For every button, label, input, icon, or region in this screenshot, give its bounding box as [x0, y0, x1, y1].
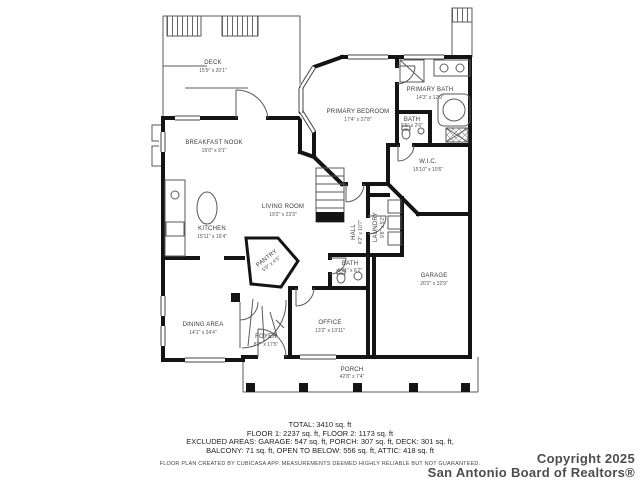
sink-icon [456, 64, 464, 72]
washer-icon [388, 200, 401, 213]
room-label-deck: DECK 15'9" x 20'1" [199, 60, 227, 74]
room-label-porch: PORCH 42'8" x 7'4" [340, 367, 365, 380]
svg-text:BATH: BATH [342, 261, 358, 267]
room-label-dining-area: DINING AREA 14'1" x 24'4" [183, 322, 224, 336]
room-label-pantry: PANTRY 5'0" x 4'5" [255, 249, 283, 275]
room-label-breakfast-nook: BREAKFAST NOOK 15'0" x 9'1" [185, 140, 242, 154]
svg-text:14'1" x 24'4": 14'1" x 24'4" [189, 330, 217, 336]
svg-text:14'3" x 12'9": 14'3" x 12'9" [416, 95, 444, 101]
copyright-year: Copyright 2025 [428, 452, 635, 466]
svg-text:DECK: DECK [204, 60, 221, 66]
room-label-foyer: FOYER 8'7" x 17'5" [254, 334, 279, 348]
svg-text:PORCH: PORCH [341, 367, 364, 373]
room-label-living-room: LIVING ROOM 19'2" x 23'3" [262, 204, 304, 218]
svg-text:LAUNDRY: LAUNDRY [373, 212, 379, 242]
svg-text:19'2" x 23'3": 19'2" x 23'3" [269, 212, 297, 218]
room-label-laundry: LAUNDRY 9'8" x 5'2" [373, 212, 386, 242]
room-label-bath-primary-wc: BATH 5'9" x 2'6" [401, 117, 423, 129]
svg-text:PRIMARY BEDROOM: PRIMARY BEDROOM [327, 109, 390, 115]
svg-text:4'2" x 10'7": 4'2" x 10'7" [358, 219, 364, 244]
svg-text:13'2" x 13'11": 13'2" x 13'11" [315, 328, 345, 334]
svg-text:17'4" x 27'8": 17'4" x 27'8" [344, 117, 372, 123]
deck-outline [163, 16, 300, 118]
room-label-bath-first-floor: BATH 5'11" x 6'2" [338, 261, 362, 274]
kitchen-island [197, 192, 217, 224]
sink-icon [440, 64, 448, 72]
room-label-primary-bedroom: PRIMARY BEDROOM 17'4" x 27'8" [327, 109, 390, 123]
porch-posts [246, 383, 470, 392]
svg-text:GARAGE: GARAGE [421, 273, 448, 279]
kitchen-fixtures [165, 180, 217, 256]
svg-text:DINING AREA: DINING AREA [183, 322, 224, 328]
svg-text:5'11" x 6'2": 5'11" x 6'2" [338, 268, 362, 274]
room-label-kitchen: KITCHEN 15'11" x 16'4" [197, 226, 227, 240]
copyright-owner: San Antonio Board of Realtors® [428, 466, 635, 480]
room-label-wic: W.I.C. 15'10" x 10'6" [413, 159, 443, 173]
copyright-watermark: Copyright 2025 San Antonio Board of Real… [428, 452, 635, 480]
svg-text:OFFICE: OFFICE [318, 320, 341, 326]
svg-text:15'9" x 20'1": 15'9" x 20'1" [199, 68, 227, 74]
svg-text:KITCHEN: KITCHEN [198, 226, 226, 232]
laundry-appliances [388, 200, 401, 245]
floor-plan-drawing: DECK 15'9" x 20'1" BREAKFAST NOOK 15'0" … [0, 0, 640, 480]
room-label-hall: HALL 4'2" x 10'7" [351, 219, 364, 244]
svg-text:LIVING ROOM: LIVING ROOM [262, 204, 304, 210]
svg-text:FOYER: FOYER [255, 334, 277, 340]
svg-text:15'11" x 16'4": 15'11" x 16'4" [197, 234, 227, 240]
straight-staircase [316, 168, 344, 222]
svg-text:15'10" x 10'6": 15'10" x 10'6" [413, 167, 443, 173]
svg-text:9'8" x 5'2": 9'8" x 5'2" [380, 216, 386, 238]
svg-text:HALL: HALL [351, 224, 357, 240]
dryer-icon [388, 216, 401, 229]
svg-text:BREAKFAST NOOK: BREAKFAST NOOK [185, 140, 242, 146]
room-label-office: OFFICE 13'2" x 13'11" [315, 320, 345, 334]
vanity-counter [434, 60, 470, 76]
floor-plan-page: DECK 15'9" x 20'1" BREAKFAST NOOK 15'0" … [0, 0, 640, 480]
stove-icon [166, 222, 184, 236]
svg-text:PRIMARY BATH: PRIMARY BATH [407, 87, 454, 93]
room-label-garage: GARAGE 20'2" x 32'9" [420, 273, 448, 287]
svg-text:15'0" x 9'1": 15'0" x 9'1" [202, 148, 227, 154]
svg-text:20'2" x 32'9": 20'2" x 32'9" [420, 281, 448, 287]
svg-text:5'9" x 2'6": 5'9" x 2'6" [401, 123, 423, 129]
upper-balcony-outline [452, 8, 472, 57]
kitchen-sink-icon [171, 191, 179, 199]
svg-text:W.I.C.: W.I.C. [419, 159, 437, 165]
svg-text:42'8" x 7'4": 42'8" x 7'4" [340, 374, 365, 380]
svg-text:8'7" x 17'5": 8'7" x 17'5" [254, 342, 279, 348]
